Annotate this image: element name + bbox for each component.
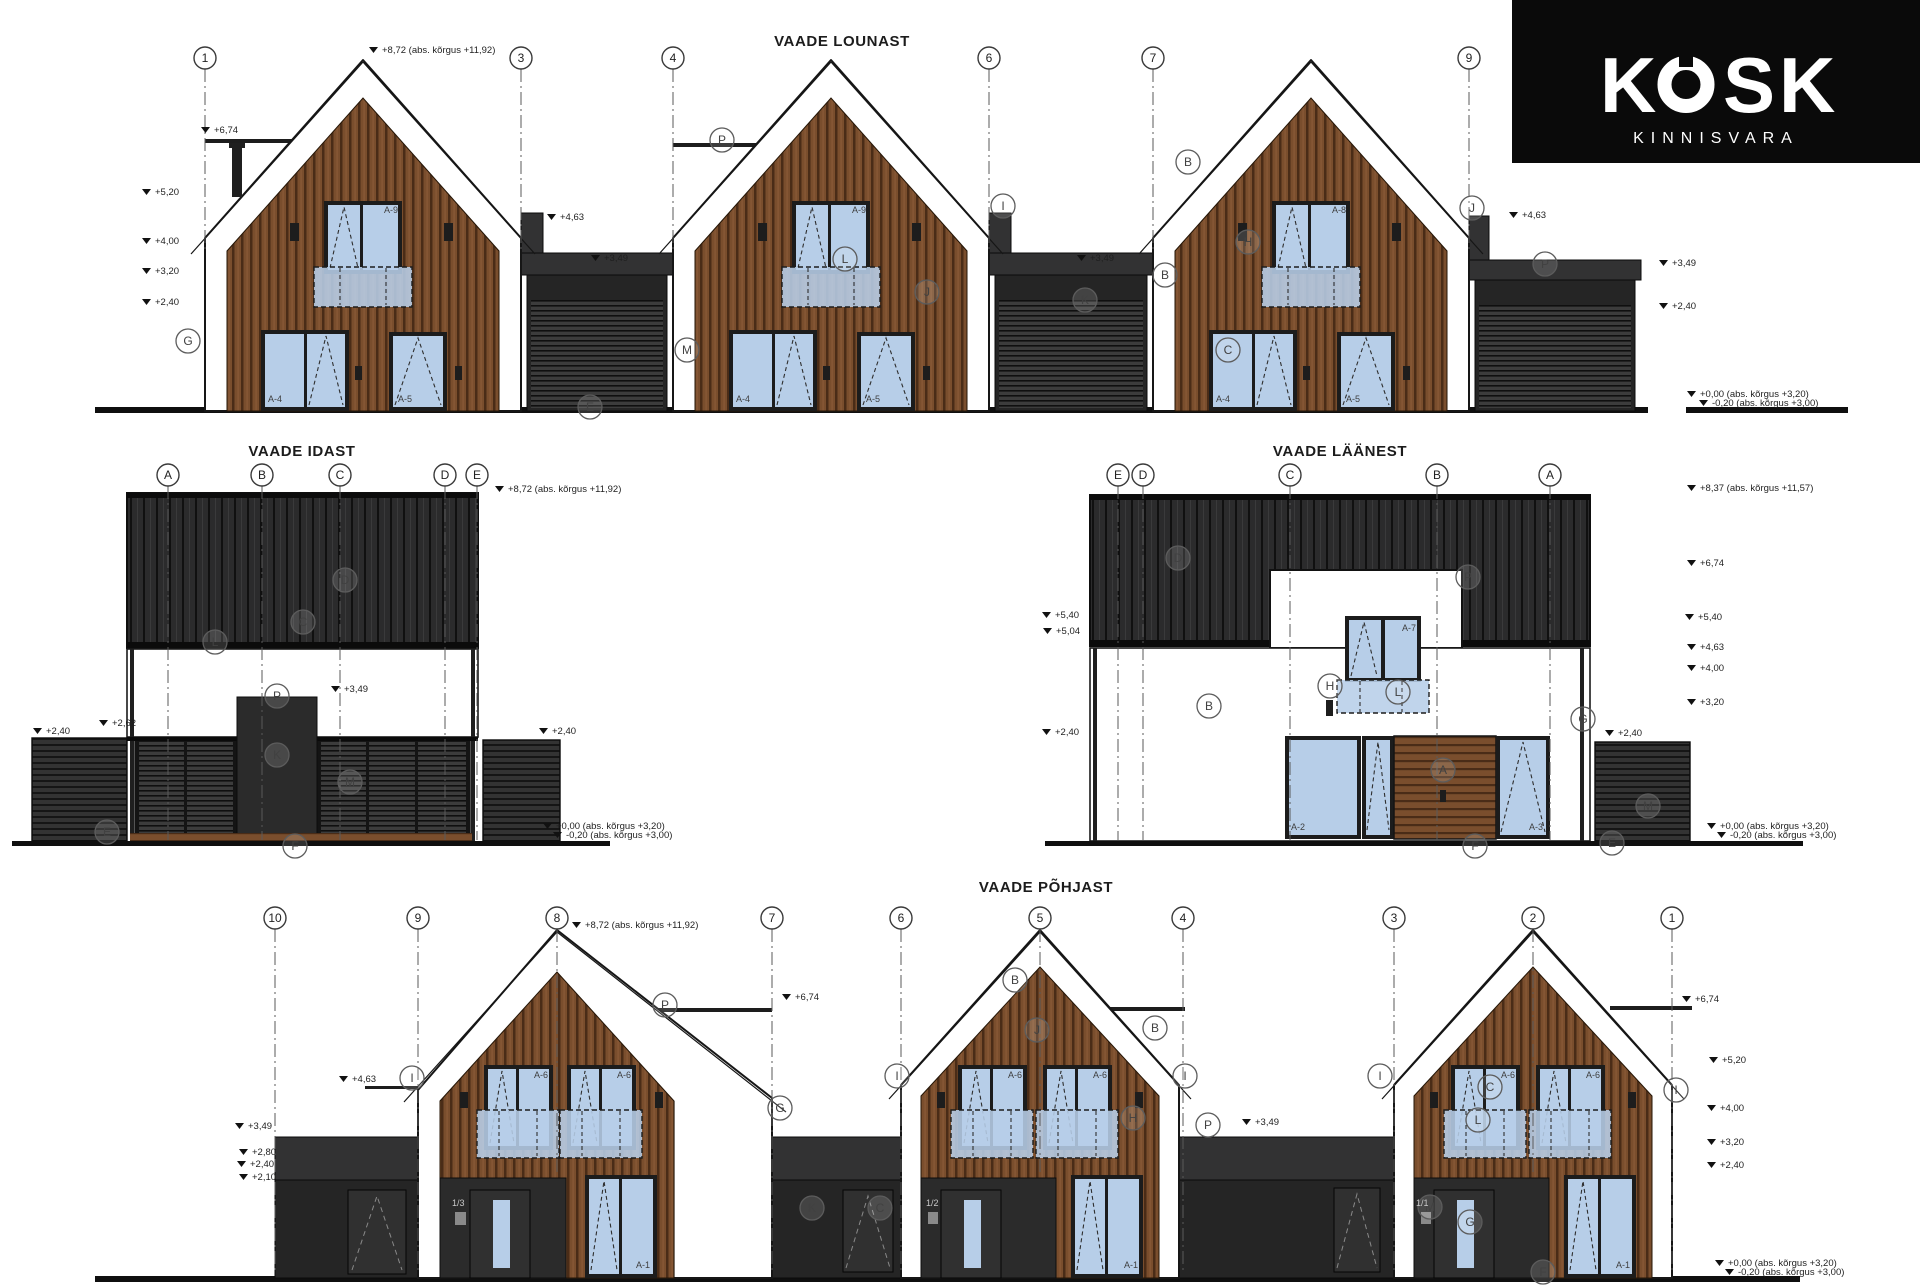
detail-letter: F (1539, 1265, 1546, 1279)
level-annotation: +2,80 (252, 1147, 276, 1158)
level-annotation: +3,49 (604, 253, 628, 264)
level-annotation: +2,40 (46, 726, 70, 737)
level-marker-icon (235, 1123, 244, 1129)
fence-post (184, 741, 187, 837)
level-marker-icon (1725, 1269, 1734, 1275)
grid-label: D (1139, 468, 1148, 482)
level-annotation: +2,40 (1672, 301, 1696, 312)
level-marker-icon (237, 1161, 246, 1167)
detail-letter: G (1578, 712, 1587, 726)
detail-letter: C (1224, 343, 1233, 357)
detail-letter: L (1395, 685, 1402, 699)
element-tag: A-5 (866, 394, 880, 404)
level-annotation: +4,00 (155, 236, 179, 247)
grid-label: E (473, 468, 481, 482)
detail-letter: P (1541, 257, 1549, 271)
logo-letter-k1: K (1600, 41, 1656, 129)
fence-post (317, 741, 321, 837)
element-tag: A-6 (1501, 1070, 1515, 1080)
level-annotation: +3,49 (1672, 258, 1696, 269)
level-marker-icon (1043, 628, 1052, 634)
level-annotation: +2,40 (250, 1159, 274, 1170)
detail-letter: C (1486, 1080, 1495, 1094)
view-east (12, 493, 610, 846)
detail-letter: E (103, 825, 111, 839)
detail-letter: I (1183, 1069, 1186, 1083)
element-tag: A-6 (617, 1070, 631, 1080)
level-marker-icon (539, 728, 548, 734)
level-marker-icon (1605, 730, 1614, 736)
element-tag: 1/1 (1416, 1198, 1429, 1208)
grid-label: 9 (1466, 51, 1473, 65)
level-marker-icon (1709, 1057, 1718, 1063)
level-annotation: +6,74 (1700, 558, 1724, 569)
grid-label: 9 (415, 911, 422, 925)
level-marker-icon (142, 299, 151, 305)
detail-letter: P (1464, 570, 1472, 584)
view-title-laanest: VAADE LÄÄNEST (1273, 443, 1407, 460)
grid-label: D (441, 468, 450, 482)
level-marker-icon (239, 1149, 248, 1155)
element-tag: A-3 (1529, 822, 1543, 832)
garage-north-mid-2 (1179, 1137, 1394, 1278)
logo-subtitle: KINNISVARA (1633, 130, 1799, 147)
chimney-cap (229, 143, 245, 148)
detail-letter: M (345, 775, 355, 789)
grid-label: 3 (518, 51, 525, 65)
level-annotation: +2,62 (112, 718, 136, 729)
level-marker-icon (1659, 260, 1668, 266)
downpipe (130, 649, 134, 841)
house-elevation-south-1 (191, 60, 535, 411)
logo-letter-s: S (1723, 41, 1775, 129)
logo-o-notch (1679, 50, 1693, 67)
level-annotation: +3,49 (1090, 253, 1114, 264)
level-annotation: +3,20 (1700, 697, 1724, 708)
grid-label: 7 (1150, 51, 1157, 65)
detail-letter: M (682, 343, 692, 357)
downpipe (471, 649, 475, 841)
detail-letter: F (1471, 839, 1478, 853)
level-marker-icon (99, 720, 108, 726)
downpipe (1093, 648, 1097, 841)
house-elevation-north-1 (404, 930, 786, 1278)
level-annotation: +4,63 (1522, 210, 1546, 221)
level-annotation: +8,72 (abs. kõrgus +11,92) (508, 484, 621, 495)
level-annotation: +8,37 (abs. kõrgus +11,57) (1700, 483, 1813, 494)
grid-label: A (1546, 468, 1554, 482)
garage-south-2 (989, 213, 1153, 411)
grid-label: 5 (1037, 911, 1044, 925)
logo-letter-k2: K (1779, 41, 1835, 129)
detail-letter: J (1034, 1023, 1040, 1037)
element-tag: A-4 (736, 394, 750, 404)
grid-label: B (1433, 468, 1441, 482)
level-annotation: -0,20 (abs. kõrgus +3,00) (566, 830, 672, 841)
level-annotation: +5,40 (1698, 612, 1722, 623)
level-annotation: +5,40 (1055, 610, 1079, 621)
grid-label: C (1286, 468, 1295, 482)
eave-board (1090, 640, 1272, 647)
level-annotation: +4,63 (352, 1074, 376, 1085)
level-annotation: +2,40 (1720, 1160, 1744, 1171)
elevation-drawing: VAADE LOUNAST134679+8,72 (abs. kõrgus +1… (0, 0, 1920, 1286)
detail-letter: K (273, 748, 281, 762)
level-marker-icon (1707, 1105, 1716, 1111)
detail-letter: P (718, 133, 726, 147)
fence-post (466, 741, 470, 837)
detail-letter: E (586, 400, 594, 414)
level-annotation: +2,40 (1055, 727, 1079, 738)
detail-letter: I (410, 1071, 413, 1085)
element-tag: A-2 (1291, 822, 1305, 832)
level-marker-icon (369, 47, 378, 53)
door-handle (1440, 790, 1446, 802)
grid-label: C (336, 468, 345, 482)
element-tag: A-1 (636, 1260, 650, 1270)
level-annotation: +6,74 (795, 992, 819, 1003)
detail-letter: I (1001, 199, 1004, 213)
level-annotation: +3,20 (155, 266, 179, 277)
level-marker-icon (1242, 1119, 1251, 1125)
grid-label: A (164, 468, 172, 482)
level-marker-icon (1687, 644, 1696, 650)
level-marker-icon (1509, 212, 1518, 218)
garage-south-3 (1469, 216, 1641, 411)
detail-letter: A (1439, 763, 1447, 777)
element-tag: A-6 (534, 1070, 548, 1080)
house-elevation-south-3 (1139, 60, 1483, 411)
level-marker-icon (142, 268, 151, 274)
level-marker-icon (201, 127, 210, 133)
level-annotation: +8,72 (abs. kõrgus +11,92) (585, 920, 698, 931)
detail-letter: G (183, 334, 192, 348)
detail-letter: K (808, 1201, 816, 1215)
level-marker-icon (239, 1174, 248, 1180)
view-west (1045, 495, 1803, 846)
element-tag: A-5 (398, 394, 412, 404)
detail-letter: B (1184, 155, 1192, 169)
balcony (1337, 680, 1429, 713)
chimney-flue (232, 147, 242, 197)
level-annotation: +3,49 (248, 1121, 272, 1132)
level-annotation: +3,49 (344, 684, 368, 695)
detail-letter: J (1469, 201, 1475, 215)
detail-letter: P (1204, 1118, 1212, 1132)
house-elevation-south-2 (659, 60, 1003, 411)
ground-line (1045, 841, 1803, 846)
level-annotation: +2,40 (552, 726, 576, 737)
level-marker-icon (1707, 823, 1716, 829)
detail-letter: B (1205, 699, 1213, 713)
detail-letter: L (212, 635, 219, 649)
detail-letter: B (1151, 1021, 1159, 1035)
level-marker-icon (1042, 729, 1051, 735)
grid-label: 6 (898, 911, 905, 925)
detail-letter: P (661, 998, 669, 1012)
level-marker-icon (1682, 996, 1691, 1002)
level-marker-icon (547, 214, 556, 220)
pergola-beam (1610, 1006, 1692, 1010)
level-marker-icon (1707, 1139, 1716, 1145)
grid-label: 4 (670, 51, 677, 65)
element-tag: A-6 (1586, 1070, 1600, 1080)
level-marker-icon (142, 189, 151, 195)
fence-post (135, 741, 139, 837)
element-tag: A-7 (1402, 623, 1416, 633)
level-marker-icon (1659, 303, 1668, 309)
element-tag: A-9 (852, 205, 866, 215)
grid-label: 10 (268, 911, 282, 925)
detail-letter: L (842, 252, 849, 266)
level-marker-icon (339, 1076, 348, 1082)
wood-slat-door (1394, 736, 1496, 839)
element-tag: A-5 (1346, 394, 1360, 404)
level-annotation: -0,20 (abs. kõrgus +3,00) (1730, 830, 1836, 841)
detail-letter: I (1378, 1069, 1381, 1083)
level-annotation: +3,20 (1720, 1137, 1744, 1148)
element-tag: A-4 (268, 394, 282, 404)
level-marker-icon (1687, 665, 1696, 671)
level-marker-icon (495, 486, 504, 492)
detail-letter: H (1326, 679, 1335, 693)
grid-label: 1 (1669, 911, 1676, 925)
detail-letter: B (1011, 973, 1019, 987)
element-tag: 1/2 (926, 1198, 939, 1208)
level-annotation: +4,63 (560, 212, 584, 223)
element-tag: A-4 (1216, 394, 1230, 404)
view-title-lounast: VAADE LOUNAST (774, 33, 910, 50)
level-annotation: +4,00 (1700, 663, 1724, 674)
downpipe (1580, 648, 1584, 841)
level-annotation: +5,04 (1056, 626, 1080, 637)
grid-label: 4 (1180, 911, 1187, 925)
view-title-idast: VAADE IDAST (248, 443, 355, 460)
garage-south-1 (521, 213, 673, 411)
level-annotation: +2,40 (1618, 728, 1642, 739)
detail-letter: F (291, 839, 298, 853)
level-annotation: +4,00 (1720, 1103, 1744, 1114)
detail-letter: E (1608, 836, 1616, 850)
detail-letter: G (1465, 1215, 1474, 1229)
view-title-pohjast: VAADE PÕHJAST (979, 878, 1113, 896)
level-annotation: -0,20 (abs. kõrgus +3,00) (1738, 1267, 1844, 1278)
element-tag: A-6 (1008, 1070, 1022, 1080)
detail-letter: K (1081, 293, 1089, 307)
drawing-sheet: VAADE LOUNAST134679+8,72 (abs. kõrgus +1… (0, 0, 1920, 1286)
element-tag: A-8 (1332, 205, 1346, 215)
detail-letter: P (273, 689, 281, 703)
ridge-cap (127, 493, 478, 498)
level-annotation: +6,74 (214, 125, 238, 136)
eave-board (127, 642, 478, 649)
detail-letter: H (1129, 1111, 1138, 1125)
level-annotation: +6,74 (1695, 994, 1719, 1005)
level-marker-icon (1685, 614, 1694, 620)
grid-label: 2 (1530, 911, 1537, 925)
grid-label: 3 (1391, 911, 1398, 925)
detail-letter: D (1174, 551, 1183, 565)
eave-board (1460, 640, 1590, 647)
level-marker-icon (1707, 1162, 1716, 1168)
fence-post (415, 741, 418, 837)
grid-label: 1 (202, 51, 209, 65)
level-annotation: +5,20 (155, 187, 179, 198)
detail-letter: B (1161, 268, 1169, 282)
grid-label: B (258, 468, 266, 482)
grid-label: 8 (554, 911, 561, 925)
level-annotation: +4,63 (1700, 642, 1724, 653)
level-marker-icon (782, 994, 791, 1000)
element-tag: 1/3 (452, 1198, 465, 1208)
level-annotation: +2,10 (252, 1172, 276, 1183)
level-marker-icon (1687, 560, 1696, 566)
detail-letter: L (1475, 1113, 1482, 1127)
level-annotation: +3,49 (1255, 1117, 1279, 1128)
level-marker-icon (1699, 400, 1708, 406)
level-annotation: +5,20 (1722, 1055, 1746, 1066)
level-annotation: -0,20 (abs. kõrgus +3,00) (1712, 398, 1818, 409)
element-tag: A-9 (384, 205, 398, 215)
detail-letter: D (341, 573, 350, 587)
fence-right (1595, 742, 1690, 841)
grid-label: 6 (986, 51, 993, 65)
level-annotation: +8,72 (abs. kõrgus +11,92) (382, 45, 495, 56)
fence-post (233, 741, 237, 837)
element-tag: A-6 (1093, 1070, 1107, 1080)
level-marker-icon (1687, 391, 1696, 397)
detail-letter: I (895, 1069, 898, 1083)
level-marker-icon (33, 728, 42, 734)
level-marker-icon (1687, 485, 1696, 491)
detail-letter: C (876, 1201, 885, 1215)
detail-letter: I (1674, 1083, 1677, 1097)
detail-letter: J (924, 285, 930, 299)
level-marker-icon (1715, 1260, 1724, 1266)
element-tag: A-1 (1124, 1260, 1138, 1270)
grid-label: E (1114, 468, 1122, 482)
level-marker-icon (142, 238, 151, 244)
doorbell-panel (455, 1212, 466, 1225)
fence-post (366, 741, 369, 837)
level-marker-icon (1717, 832, 1726, 838)
detail-letter: M (1643, 799, 1653, 813)
level-marker-icon (1042, 612, 1051, 618)
garage-north-left (275, 1137, 418, 1278)
element-tag: A-1 (1616, 1260, 1630, 1270)
detail-letter: G (775, 1101, 784, 1115)
grid-label: 7 (769, 911, 776, 925)
detail-letter: H (1244, 235, 1253, 249)
ridge-cap (1090, 495, 1590, 500)
logo: K S K KINNISVARA (1512, 0, 1920, 163)
level-annotation: +2,40 (155, 297, 179, 308)
level-marker-icon (1687, 699, 1696, 705)
detail-letter: C (299, 615, 308, 629)
view-north (95, 930, 1800, 1282)
level-marker-icon (572, 922, 581, 928)
